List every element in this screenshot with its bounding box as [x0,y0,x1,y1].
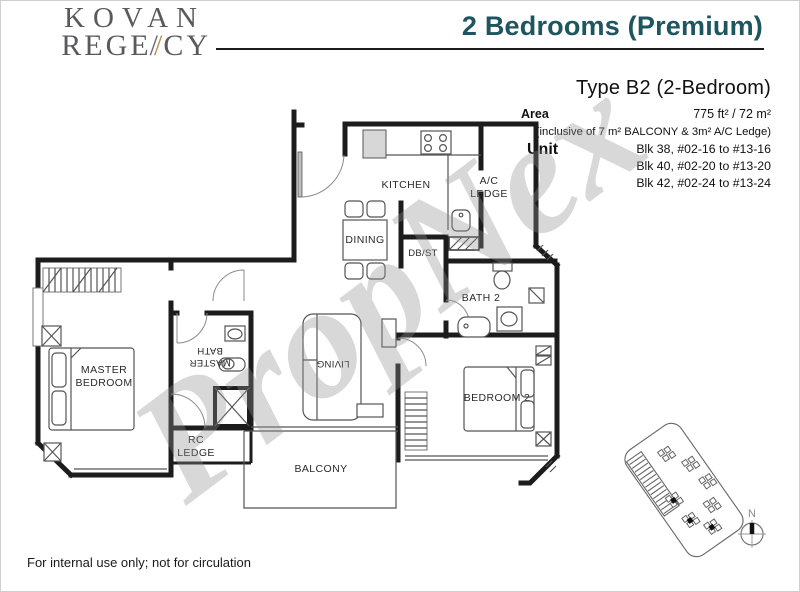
label-bath2: BATH 2 [462,292,500,304]
flyer-page: KOVAN REGE//CY 2 Bedrooms (Premium) Type… [0,0,800,592]
highlighted-block [670,497,677,504]
label-dining: DINING [345,234,384,246]
entry-door-arc [302,155,344,197]
label-dbst: DB/ST [408,248,437,259]
label-rc-2: LEDGE [177,447,215,459]
label-ac-2: LEDGE [470,188,508,200]
toilet [494,271,510,289]
page-title: 2 Bedrooms (Premium) [462,11,763,42]
masterbath-door-arc [177,313,207,343]
unit-line: Blk 40, #02-20 to #13-20 [636,158,771,175]
dining-chair [345,201,363,217]
label-balcony: BALCONY [295,463,348,475]
label-master-1: MASTER [81,364,127,376]
logo-line2: REGE//CY [31,32,211,60]
floorplan-svg: KITCHEN A/C LEDGE DINING DB/ST BATH 2 MA… [29,98,569,548]
shower [458,317,490,337]
north-label: N [748,508,756,520]
bedroom2-door-arc [398,338,426,366]
siteplan-keymap [620,419,747,562]
label-masterbath-2: BATH [197,345,223,356]
label-kitchen: KITCHEN [382,179,431,191]
label-bedroom2: BEDROOM 2 [464,392,531,404]
dining-chair [367,201,385,217]
pillow [52,391,66,425]
hall-door-arc [213,270,244,301]
dining-chair [367,263,385,279]
label-living: LIVING [317,358,350,369]
label-ac-1: A/C [480,175,499,187]
highlighted-block [708,524,715,531]
logo-line1: KOVAN [31,5,211,32]
unit-lines: Blk 38, #02-16 to #13-16 Blk 40, #02-20 … [636,141,771,192]
developer-logo: KOVAN REGE//CY [31,5,211,59]
unit-type-title: Type B2 (2-Bedroom) [521,77,771,100]
coffee-table [357,404,383,417]
bedroom2-ledge-hatch [405,392,427,450]
pillow [52,353,66,387]
footer-note: For internal use only; not for circulati… [27,555,251,570]
entry-door-leaf [298,152,302,197]
label-rc-1: RC [188,434,204,446]
header-divider [216,48,764,50]
unit-line: Blk 42, #02-24 to #13-24 [636,175,771,192]
highlighted-block [687,517,694,524]
pillow [521,401,534,428]
label-masterbath-1: MASTER [189,357,230,368]
dining-chair [345,263,363,279]
unit-line: Blk 38, #02-16 to #13-16 [636,141,771,158]
label-master-2: BEDROOM [75,377,132,389]
compass: N [738,508,766,548]
tv-console [382,319,396,347]
toilet-tank [493,263,512,271]
area-value: 775 ft² / 72 m² [693,106,771,122]
fridge [363,130,386,158]
